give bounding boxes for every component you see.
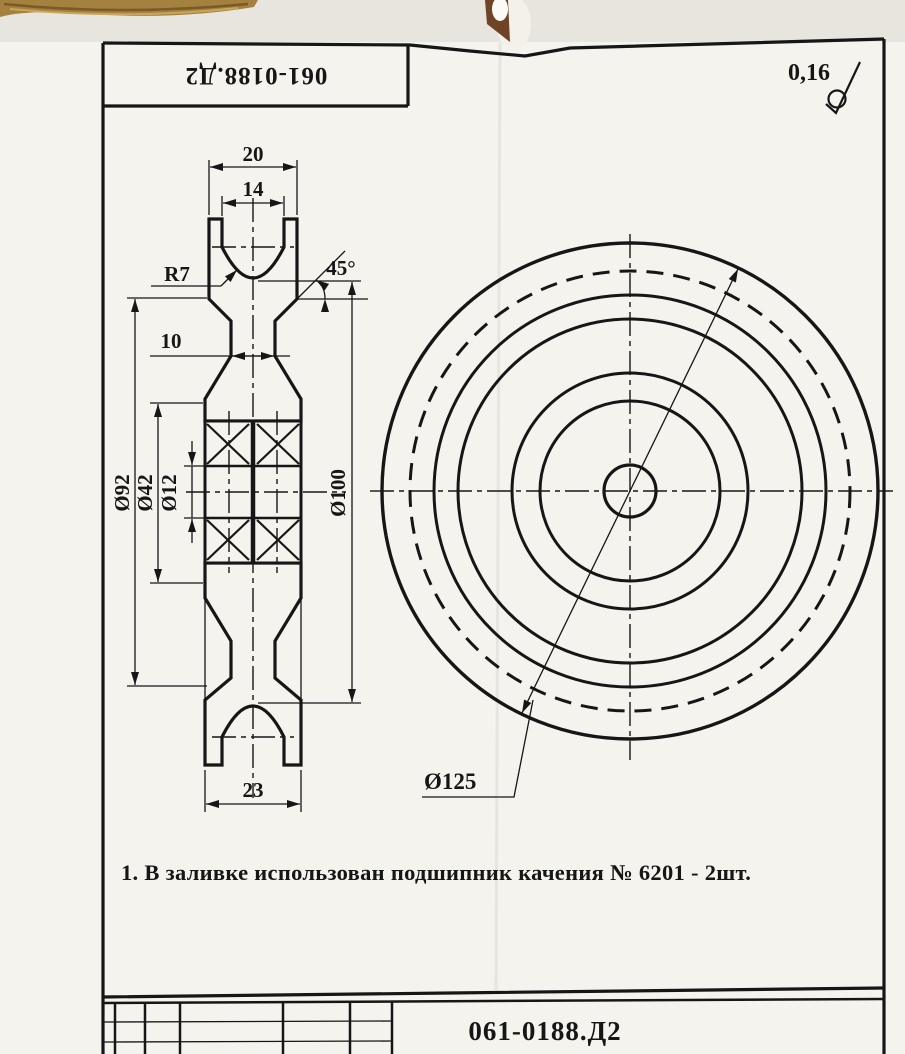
title-block-top: [103, 999, 884, 1003]
drawing-area-bottom: [103, 988, 884, 997]
dim-groove-radius-label: R7: [164, 262, 190, 286]
top-stamp-code: 061-0188.Д2: [185, 62, 328, 89]
dim-dia-outer-label: Ø125: [424, 769, 476, 794]
front-view-centerlines: [370, 234, 893, 760]
dim-dia-hub-label: Ø42: [133, 474, 157, 511]
dim-groove-width-label: 14: [243, 177, 265, 201]
front-view: Ø125: [370, 234, 893, 797]
top-stamp: 061-0188.Д2: [103, 44, 408, 106]
paper-crease: [496, 43, 500, 990]
drawing-note: 1. В заливке использован подшипник качен…: [121, 860, 751, 885]
dim-width-top-label: 20: [243, 142, 264, 166]
roughness-icon: [826, 62, 860, 113]
dim-dia-outer: [422, 269, 738, 797]
section-view: 20 14 R7 45° 10: [110, 142, 368, 812]
roughness-value: 0,16: [788, 60, 830, 86]
scanned-engineering-drawing: 061-0188.Д2 0,16: [0, 0, 905, 1054]
title-block: 061-0188.Д2: [103, 999, 884, 1054]
dim-dia-groove-label: Ø100: [326, 469, 350, 517]
dim-dia-bore-label: Ø12: [157, 474, 181, 511]
dim-web-width-label: 10: [161, 329, 182, 353]
dim-dia-flange-label: Ø92: [110, 474, 134, 511]
title-block-code: 061-0188.Д2: [468, 1016, 621, 1046]
surface-roughness: 0,16: [788, 60, 860, 113]
dim-chamfer-angle-label: 45°: [326, 256, 355, 280]
dim-width-bottom-label: 23: [243, 778, 264, 802]
